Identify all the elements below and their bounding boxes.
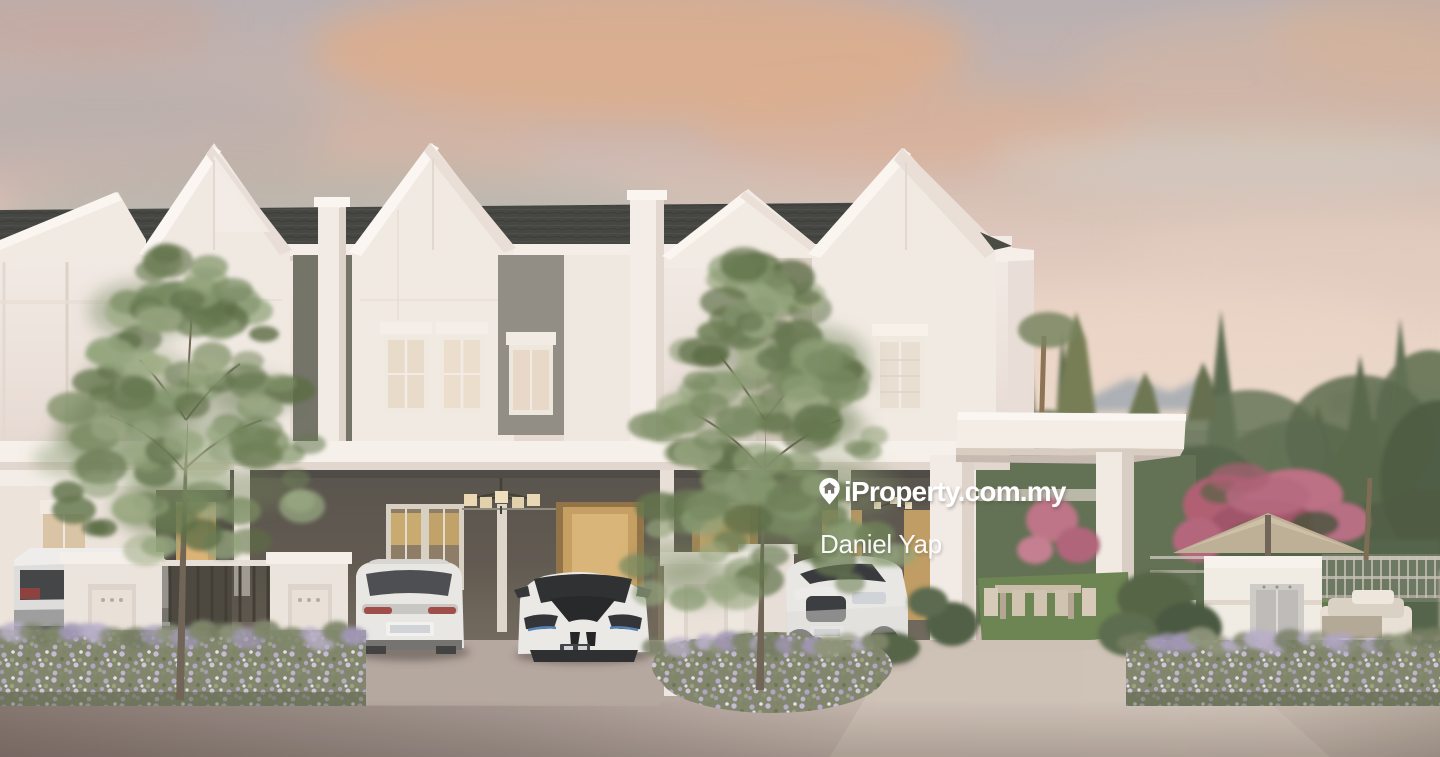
svg-text:iProperty.com.my: iProperty.com.my — [844, 476, 1067, 507]
svg-text:Daniel Yap: Daniel Yap — [820, 529, 942, 559]
